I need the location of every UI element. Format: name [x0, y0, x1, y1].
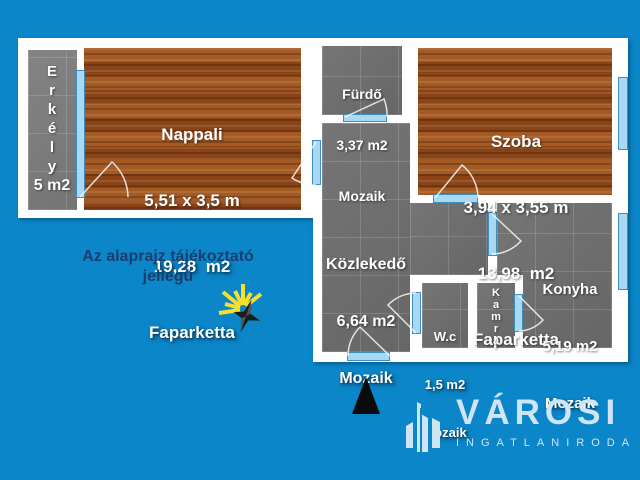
- furdo-floor: Mozaik: [336, 188, 387, 205]
- label-erkely: E r k é l y: [47, 62, 57, 176]
- furdo-name: Fürdő: [336, 86, 387, 103]
- agency-name: VÁROSI: [456, 394, 636, 432]
- konyha-area: 5,19 m2: [542, 337, 597, 356]
- agency-logo-text: VÁROSI INGATLANIRODA: [456, 394, 636, 449]
- wc-area: 1,5 m2: [423, 377, 466, 393]
- nappali-size: 5,51 x 3,5 m: [144, 190, 239, 212]
- label-erkely-area: 5 m2: [34, 177, 70, 195]
- floorplan-flyer: E r k é l y 5 m2 Nappali 5,51 x 3,5 m 19…: [0, 0, 640, 480]
- label-nappali: Nappali 5,51 x 3,5 m 19,28 m2 Faparketta: [144, 80, 239, 388]
- kozlekedo-area: 6,64 m2: [326, 312, 406, 331]
- north-arrow-icon: [352, 377, 380, 414]
- szoba-name: Szoba: [464, 131, 569, 153]
- label-furdo: Fürdő 3,37 m2 Mozaik: [336, 52, 387, 239]
- disclaimer-text: Az alaprajz tájékoztató jellegű: [82, 247, 254, 287]
- nappali-name: Nappali: [144, 124, 239, 146]
- label-kamra: K a m r a: [491, 287, 501, 347]
- konyha-name: Konyha: [542, 280, 597, 299]
- sun-compass-icon: [212, 282, 270, 336]
- agency-logo: VÁROSI INGATLANIRODA: [404, 394, 636, 456]
- kozlekedo-name: Közlekedő: [326, 255, 406, 274]
- city-buildings-icon: [404, 394, 446, 456]
- furdo-area: 3,37 m2: [336, 137, 387, 154]
- wc-name: W.c: [423, 329, 466, 345]
- agency-subtitle: INGATLANIRODA: [456, 437, 636, 449]
- szoba-size: 3,94 x 3,55 m: [464, 197, 569, 219]
